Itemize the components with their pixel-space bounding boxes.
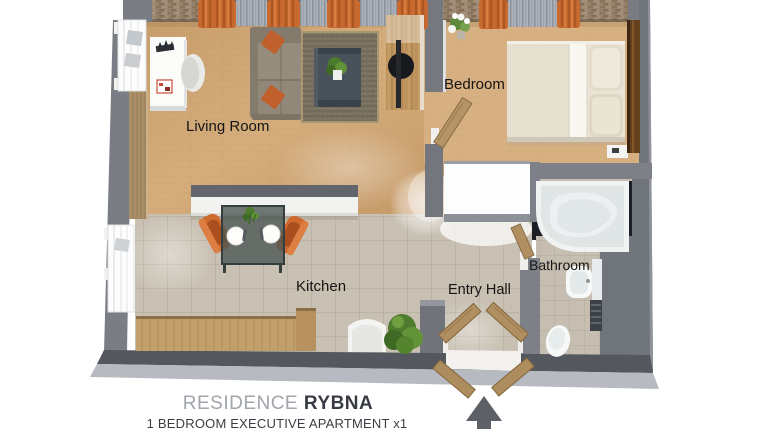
svg-text:RESIDENCE RYBNA: RESIDENCE RYBNA bbox=[183, 393, 374, 414]
svg-text:Bathroom: Bathroom bbox=[529, 257, 590, 273]
svg-text:Bedroom: Bedroom bbox=[444, 76, 505, 93]
svg-text:1 BEDROOM EXECUTIVE APARTMENT: 1 BEDROOM EXECUTIVE APARTMENT x1 bbox=[147, 416, 408, 431]
svg-text:Kitchen: Kitchen bbox=[296, 278, 346, 295]
svg-text:Living Room: Living Room bbox=[186, 118, 269, 135]
svg-text:Entry Hall: Entry Hall bbox=[448, 282, 511, 298]
